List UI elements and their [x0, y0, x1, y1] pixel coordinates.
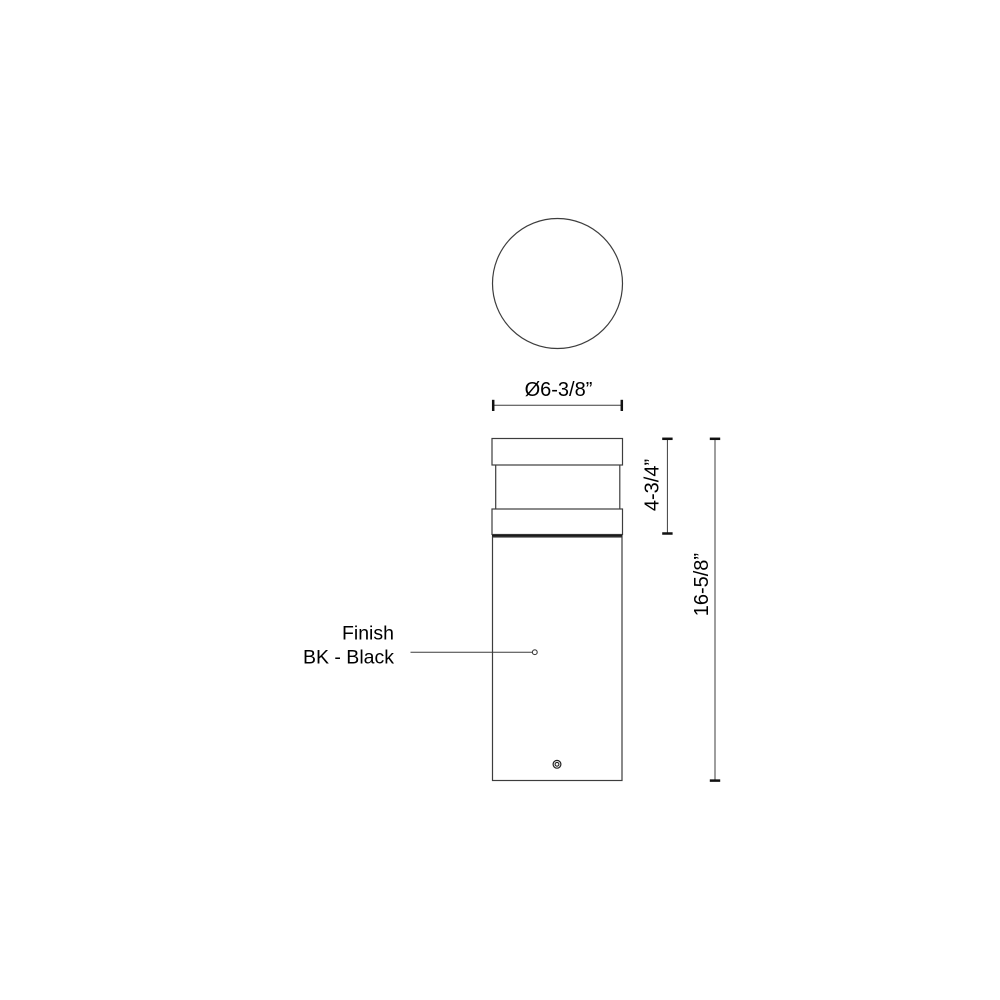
- svg-text:16-5/8”: 16-5/8”: [691, 553, 713, 616]
- svg-text:4-3/4”: 4-3/4”: [642, 459, 664, 511]
- svg-text:Ø6-3/8”: Ø6-3/8”: [525, 379, 593, 401]
- svg-text:Finish: Finish: [342, 623, 394, 645]
- svg-text:BK - Black: BK - Black: [303, 647, 394, 669]
